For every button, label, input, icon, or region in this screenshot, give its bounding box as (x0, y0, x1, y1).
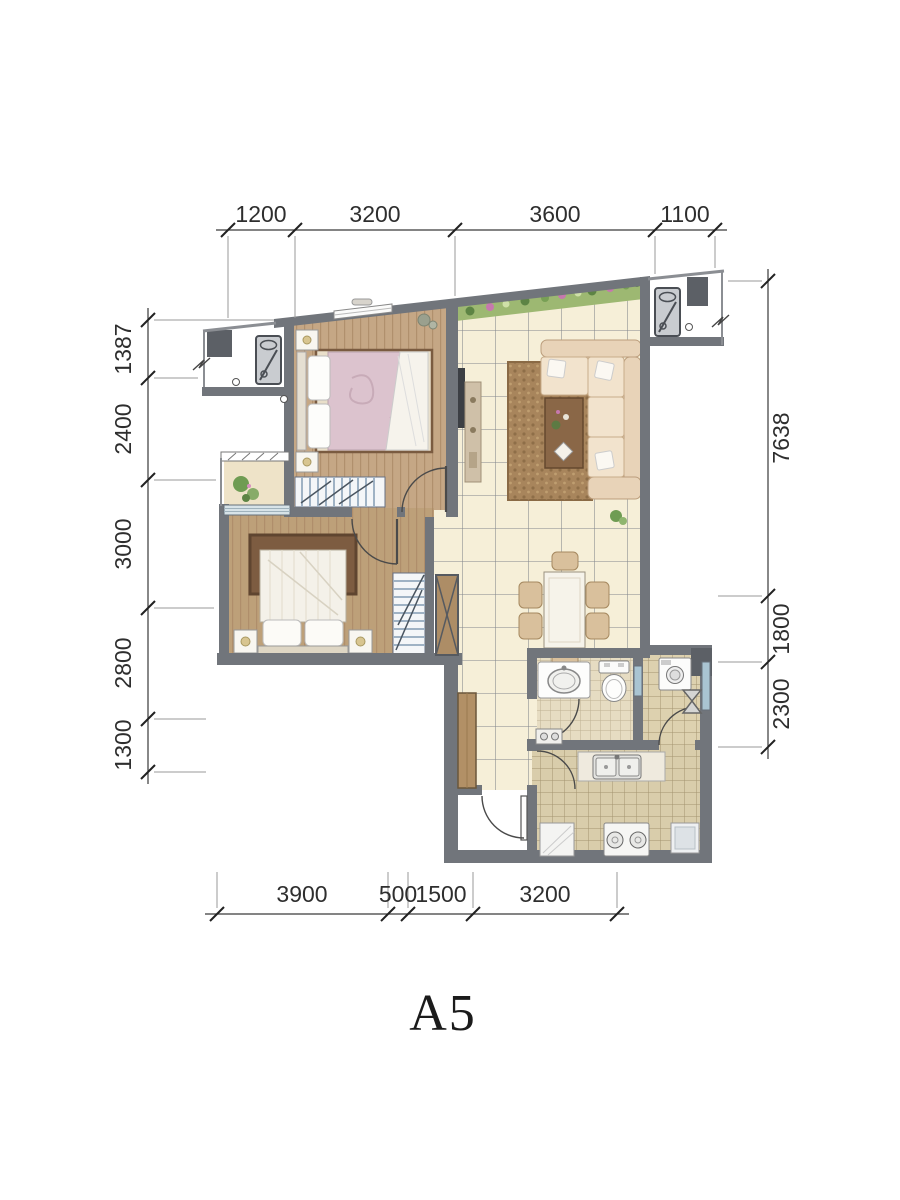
dim-label: 2800 (110, 637, 136, 688)
dining-chair-icon (586, 613, 609, 639)
storage-cabinet-icon (436, 575, 458, 655)
kitchen-sink-icon (578, 752, 665, 781)
pillow-icon (595, 451, 615, 471)
wall (640, 277, 650, 655)
pillow-icon (308, 356, 330, 400)
wall (695, 740, 712, 750)
unit-title: A5 (409, 985, 477, 1042)
drain-icon (686, 324, 693, 331)
wall (533, 648, 650, 658)
pillow-icon (305, 620, 343, 646)
dim-label: 7638 (768, 412, 794, 463)
washing-machine-icon (659, 658, 691, 690)
pillow-icon (594, 361, 614, 381)
drain-icon (281, 396, 288, 403)
air-conditioner-icon (256, 336, 281, 384)
coffee-table-icon (545, 398, 583, 468)
wardrobe-icon (295, 477, 385, 507)
pillow-icon (263, 620, 301, 646)
dim-label: 3200 (519, 881, 570, 907)
wall (217, 653, 462, 665)
dining-table-icon (544, 572, 585, 648)
flower-icon (486, 303, 494, 311)
dim-label: 3200 (349, 201, 400, 227)
pillow-icon (308, 404, 330, 448)
dim-label: 3600 (529, 201, 580, 227)
dining-chair-icon (519, 613, 542, 639)
floor-plan-drawing: 1200 3200 3600 1100 1387 2400 3000 2800 … (0, 0, 900, 1200)
wall-pillar (687, 277, 708, 306)
dim-label: 1500 (415, 881, 466, 907)
wall (527, 648, 537, 699)
window-icon (224, 505, 290, 515)
wall (284, 321, 294, 517)
gas-stove-icon (604, 823, 649, 856)
wall (527, 785, 537, 795)
dim-label: 2300 (768, 678, 794, 729)
floor-plan-page: 1200 3200 3600 1100 1387 2400 3000 2800 … (0, 0, 900, 1200)
plant-icon (233, 476, 249, 492)
washbasin-icon (538, 662, 590, 698)
kitchen-cabinet-icon (540, 823, 574, 856)
wall (640, 337, 724, 346)
break-line-icon (193, 358, 210, 370)
dim-label: 1300 (110, 719, 136, 770)
wall (284, 507, 352, 517)
dimension-right: 7638 1800 2300 (718, 269, 794, 759)
dining-chair-icon (552, 552, 578, 570)
window-icon (702, 662, 710, 710)
dim-label: 500 (379, 881, 417, 907)
dim-label: 3900 (276, 881, 327, 907)
washer-outlet-icon (536, 729, 562, 744)
shoe-cabinet-icon (458, 693, 476, 788)
dim-label: 3000 (110, 518, 136, 569)
refrigerator-icon (671, 823, 699, 853)
break-line-icon (712, 315, 729, 327)
toilet-icon (599, 661, 629, 702)
wardrobe-icon (393, 573, 425, 655)
drain-icon (233, 379, 240, 386)
wall (202, 387, 294, 396)
wall (643, 740, 659, 750)
dining-chair-icon (519, 582, 542, 608)
dim-label: 1200 (235, 201, 286, 227)
wall (446, 301, 458, 517)
wall (219, 504, 229, 664)
dim-label: 2400 (110, 403, 136, 454)
dim-label: 1800 (768, 603, 794, 654)
tv-icon (458, 368, 465, 428)
window-icon (634, 666, 642, 696)
entry-door-icon (482, 796, 527, 840)
wall (397, 507, 405, 517)
flower-icon (247, 484, 251, 488)
plant-icon (242, 494, 250, 502)
air-conditioner-icon (655, 288, 680, 336)
dim-label: 1387 (110, 323, 136, 374)
dim-label: 1100 (660, 201, 709, 227)
tv-cabinet-icon (465, 382, 481, 482)
dining-chair-icon (586, 582, 609, 608)
wall-pillar (207, 330, 232, 357)
pillow-icon (547, 359, 566, 378)
dimension-bottom: 3900 500 1500 3200 (205, 872, 629, 921)
wall (444, 655, 458, 863)
plant-icon (466, 307, 475, 316)
wall (425, 517, 434, 660)
